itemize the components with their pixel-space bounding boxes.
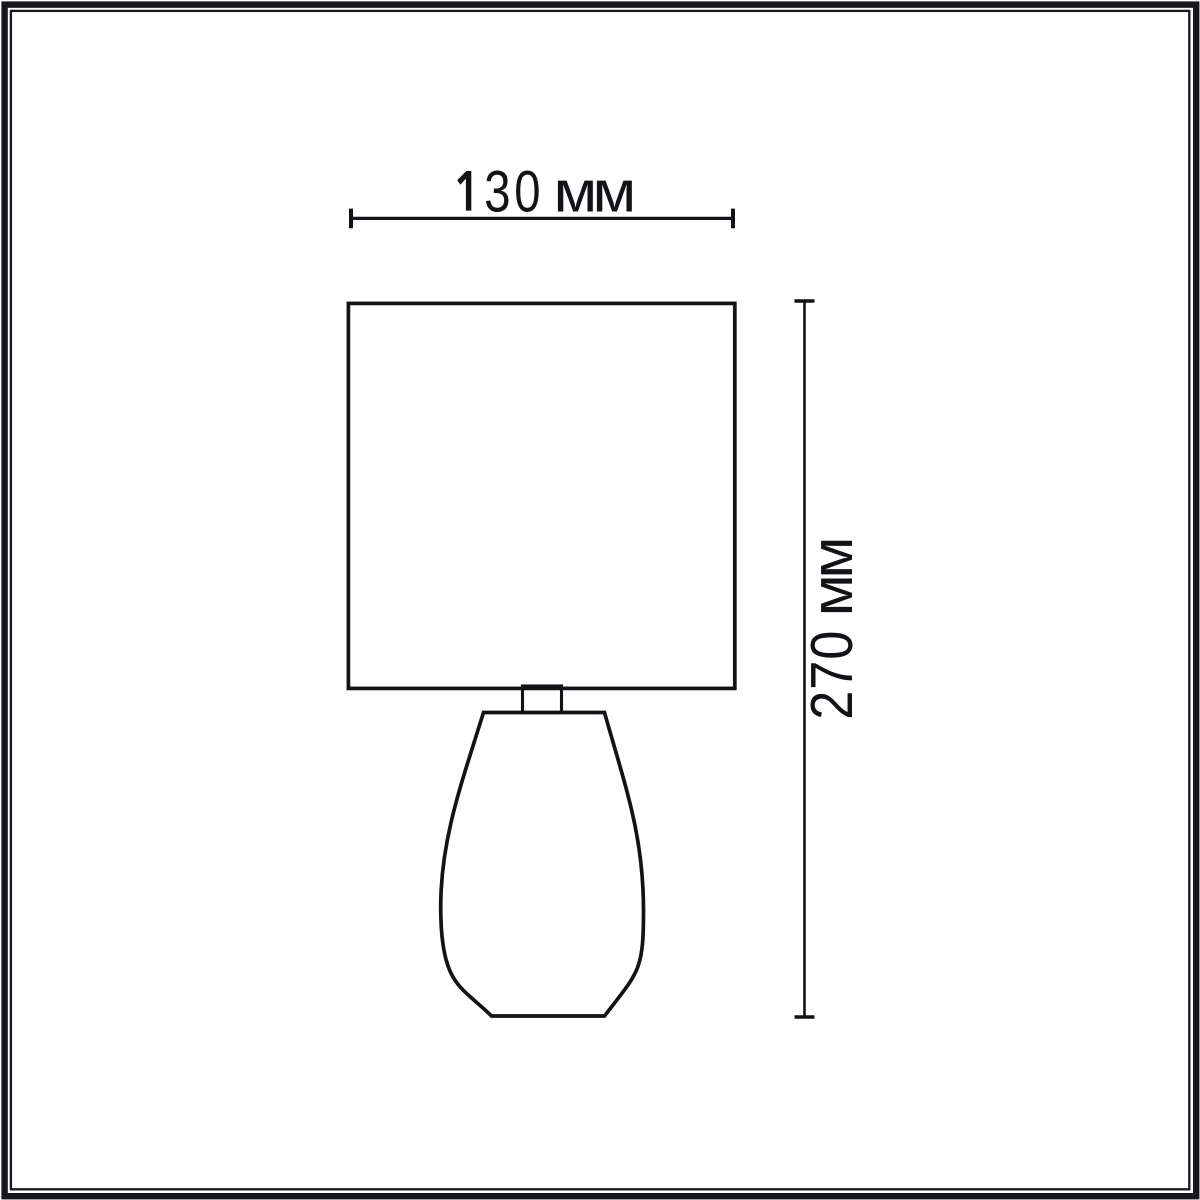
svg-text:30: 30 — [484, 160, 544, 225]
svg-text:270: 270 — [798, 630, 865, 720]
svg-text:мм: мм — [554, 159, 633, 224]
svg-text:мм: мм — [800, 541, 865, 617]
